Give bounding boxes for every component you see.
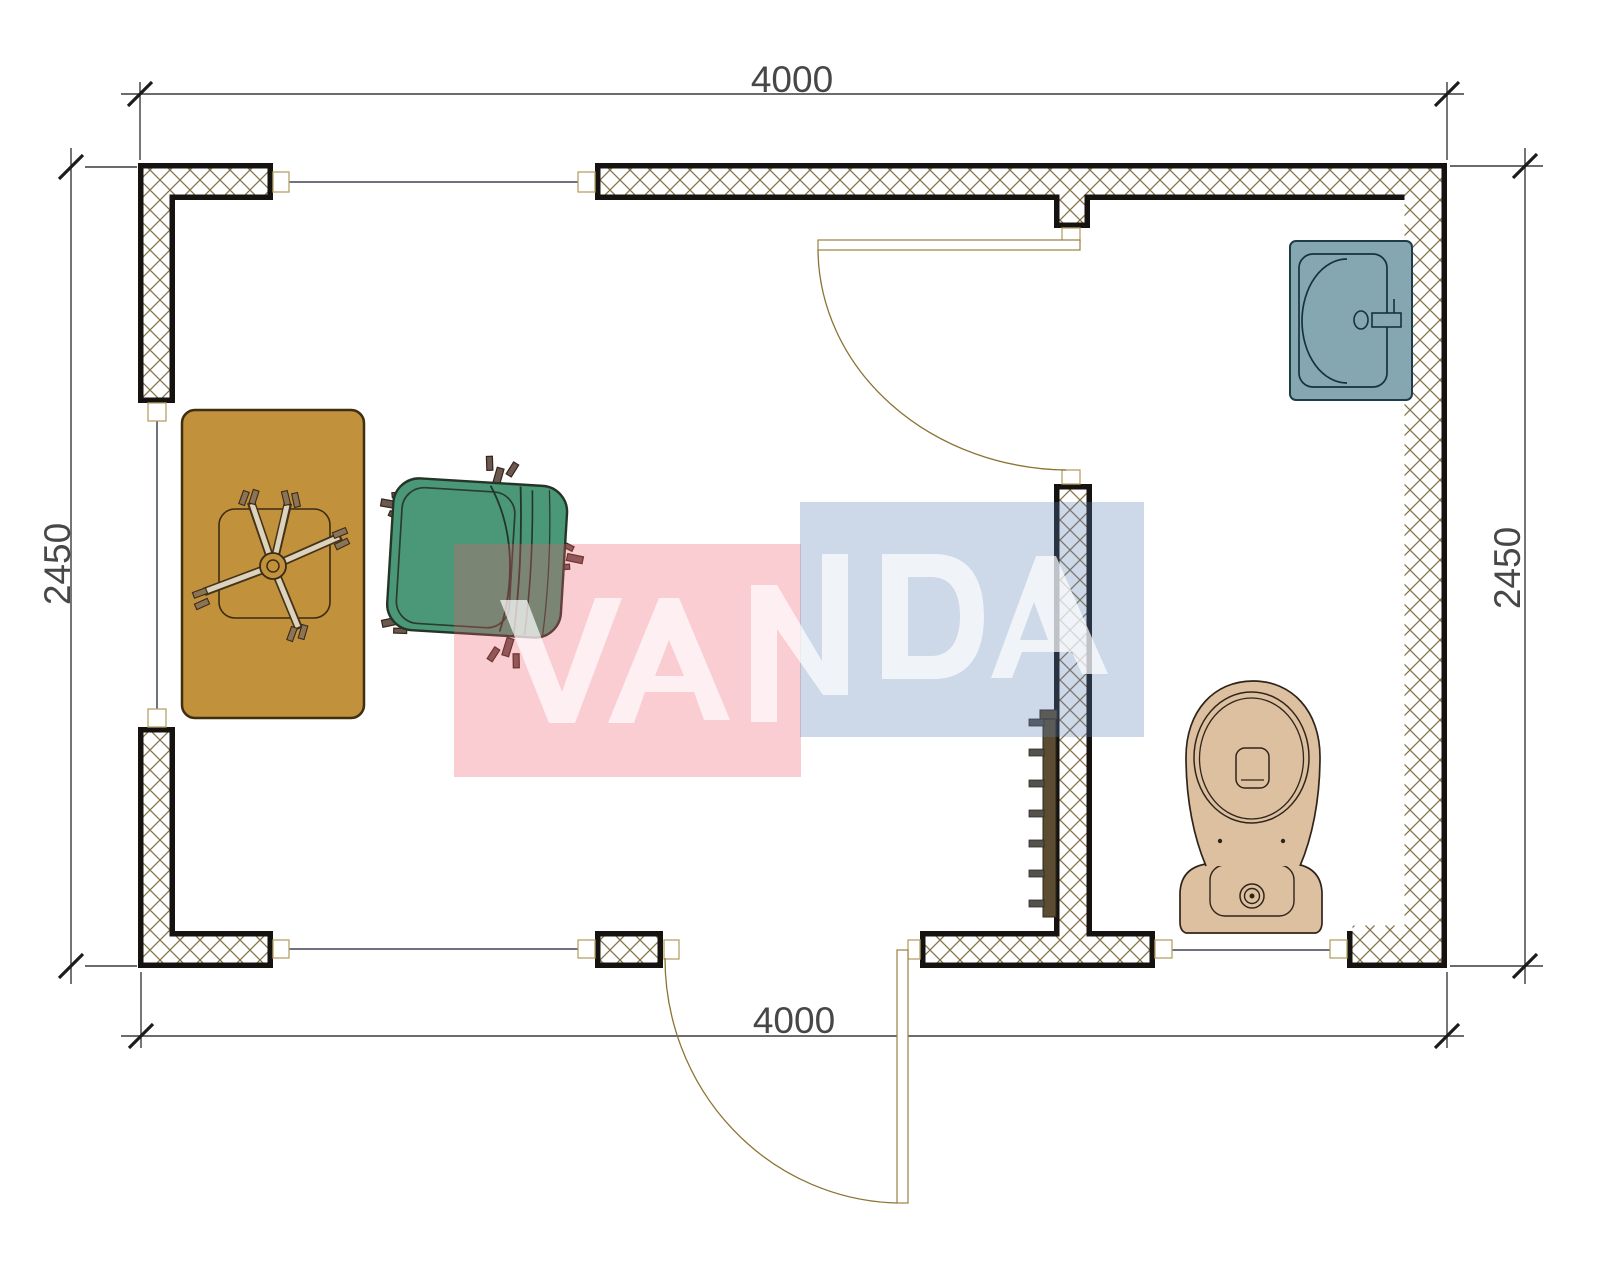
- svg-text:4000: 4000: [751, 59, 833, 100]
- svg-text:4000: 4000: [753, 1000, 835, 1041]
- svg-text:2450: 2450: [37, 523, 78, 605]
- svg-text:2450: 2450: [1487, 527, 1528, 609]
